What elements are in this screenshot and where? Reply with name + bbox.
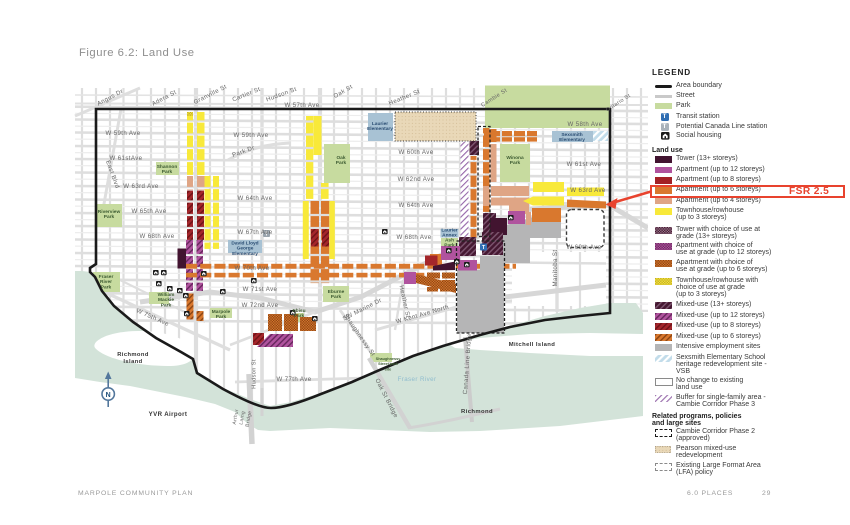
svg-text:W 60th Ave: W 60th Ave	[398, 149, 433, 156]
svg-text:Park: Park	[331, 294, 342, 300]
svg-text:site: site	[385, 367, 392, 371]
svg-text:William: William	[158, 292, 175, 298]
svg-text:YVR Airport: YVR Airport	[149, 411, 188, 418]
svg-text:Eburne: Eburne	[328, 289, 345, 295]
svg-text:Richmond: Richmond	[461, 409, 493, 415]
